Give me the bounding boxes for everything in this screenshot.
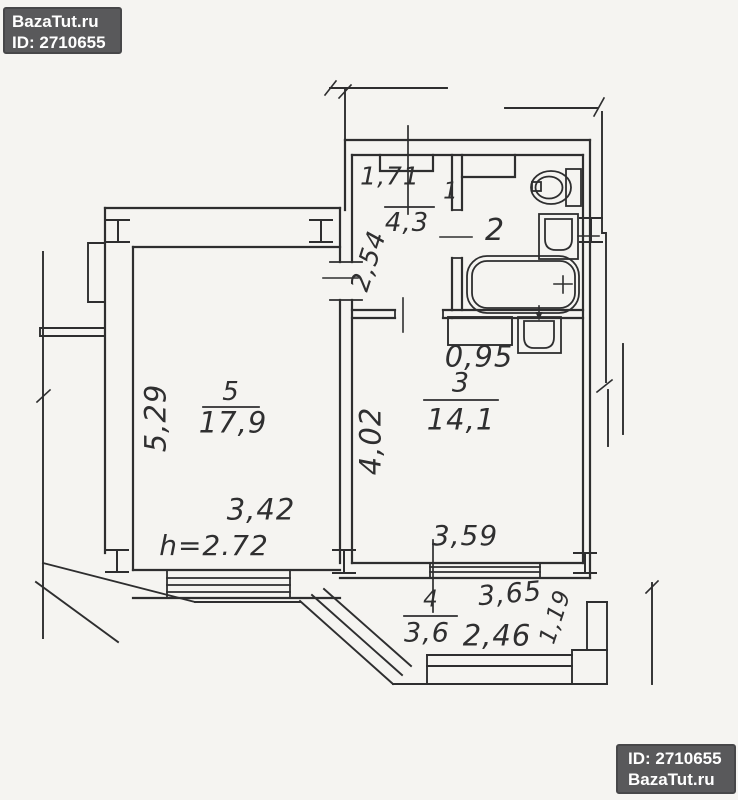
floorplan-drawing [0, 0, 738, 800]
window-room5 [167, 570, 290, 598]
toilet-icon [531, 169, 581, 206]
room2-number: 2 [485, 216, 505, 246]
room1-number: 1 [443, 181, 459, 204]
dim-label-room5-width: 3,42 [227, 496, 296, 525]
room3-area: 14,1 [427, 406, 496, 435]
watermark-badge-top: BazaTut.ru ID: 2710655 [3, 7, 122, 54]
watermark-badge-bottom: ID: 2710655 BazaTut.ru [616, 744, 736, 794]
watermark-listing-id: ID: 2710655 [628, 748, 734, 769]
dim-label-room5-depth: 5,29 [142, 384, 171, 453]
watermark-site-name: BazaTut.ru [628, 769, 734, 790]
room5-area: 17,9 [199, 409, 268, 438]
dim-label-room3-depth: 4,02 [357, 407, 386, 476]
dim-label-room4-inner: 2,46 [463, 622, 532, 651]
floorplan-scan: 1,71 1 4,3 2,54 2 0,95 5,29 5 17,9 3,42 … [0, 0, 738, 800]
window-room3-balcony [430, 563, 540, 578]
ceiling-height-label: h=2.72 [159, 532, 269, 560]
watermark-site-name: BazaTut.ru [12, 11, 120, 32]
room5-number: 5 [222, 379, 240, 405]
dim-label-room4-len: 3,65 [477, 578, 543, 610]
room3-number: 3 [452, 370, 470, 397]
bathtub-icon [467, 256, 579, 313]
room4-area: 3,6 [404, 620, 450, 647]
room4-number: 4 [423, 589, 439, 612]
room1-area: 4,3 [385, 210, 429, 236]
dim-label-room3-width: 3,59 [432, 522, 498, 550]
watermark-listing-id: ID: 2710655 [12, 32, 120, 53]
dim-label-room1-width: 1,71 [360, 164, 420, 189]
